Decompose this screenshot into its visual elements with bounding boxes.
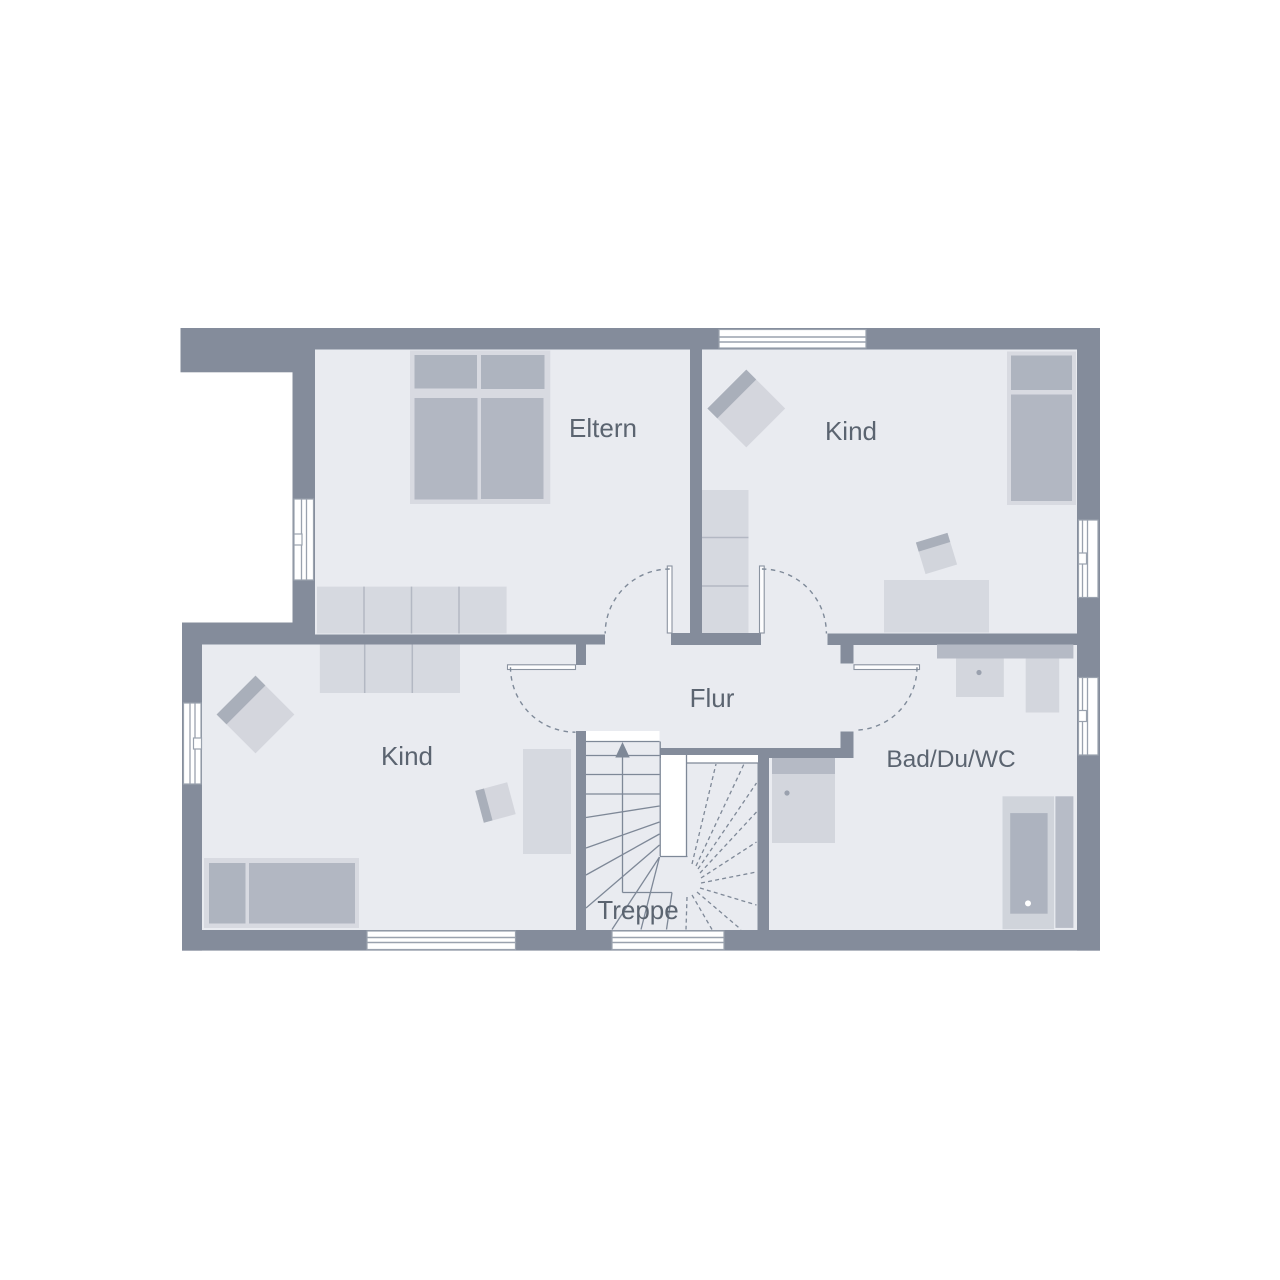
svg-text:Flur: Flur [690, 683, 735, 713]
svg-text:Treppe: Treppe [597, 895, 678, 925]
svg-text:Kind: Kind [381, 741, 433, 771]
svg-text:Eltern: Eltern [569, 413, 637, 443]
svg-text:Kind: Kind [825, 416, 877, 446]
svg-text:Bad/Du/WC: Bad/Du/WC [886, 746, 1015, 773]
